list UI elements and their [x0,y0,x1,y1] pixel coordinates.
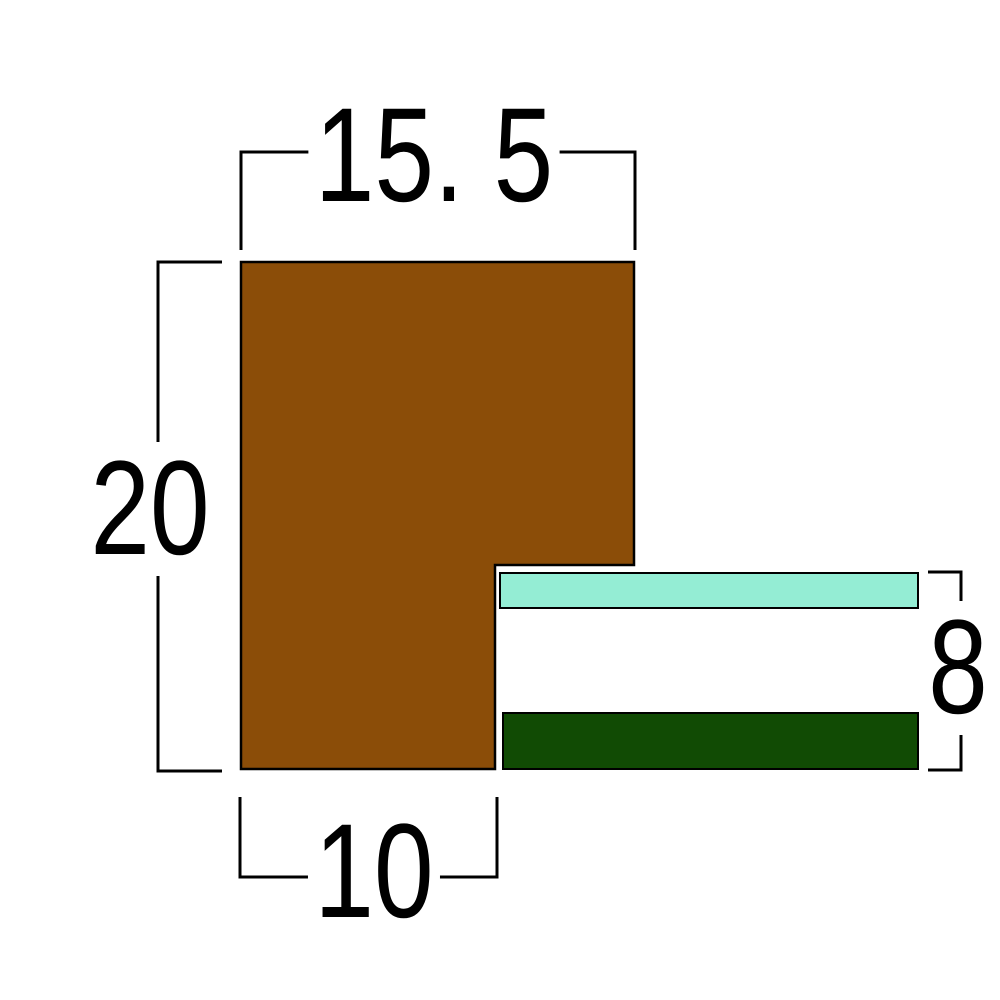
moulding-profile-shape [241,262,634,769]
right-height-dimension-label: 8 [922,601,994,735]
top-strip-shape [500,573,918,608]
bottom-strip-shape [503,713,918,769]
left-height-dimension-label: 20 [84,442,216,576]
dimension-diagram: 15. 5 20 10 8 [0,0,1000,1000]
top-width-dimension-label: 15. 5 [308,89,559,223]
bottom-width-dimension-label: 10 [308,805,440,939]
